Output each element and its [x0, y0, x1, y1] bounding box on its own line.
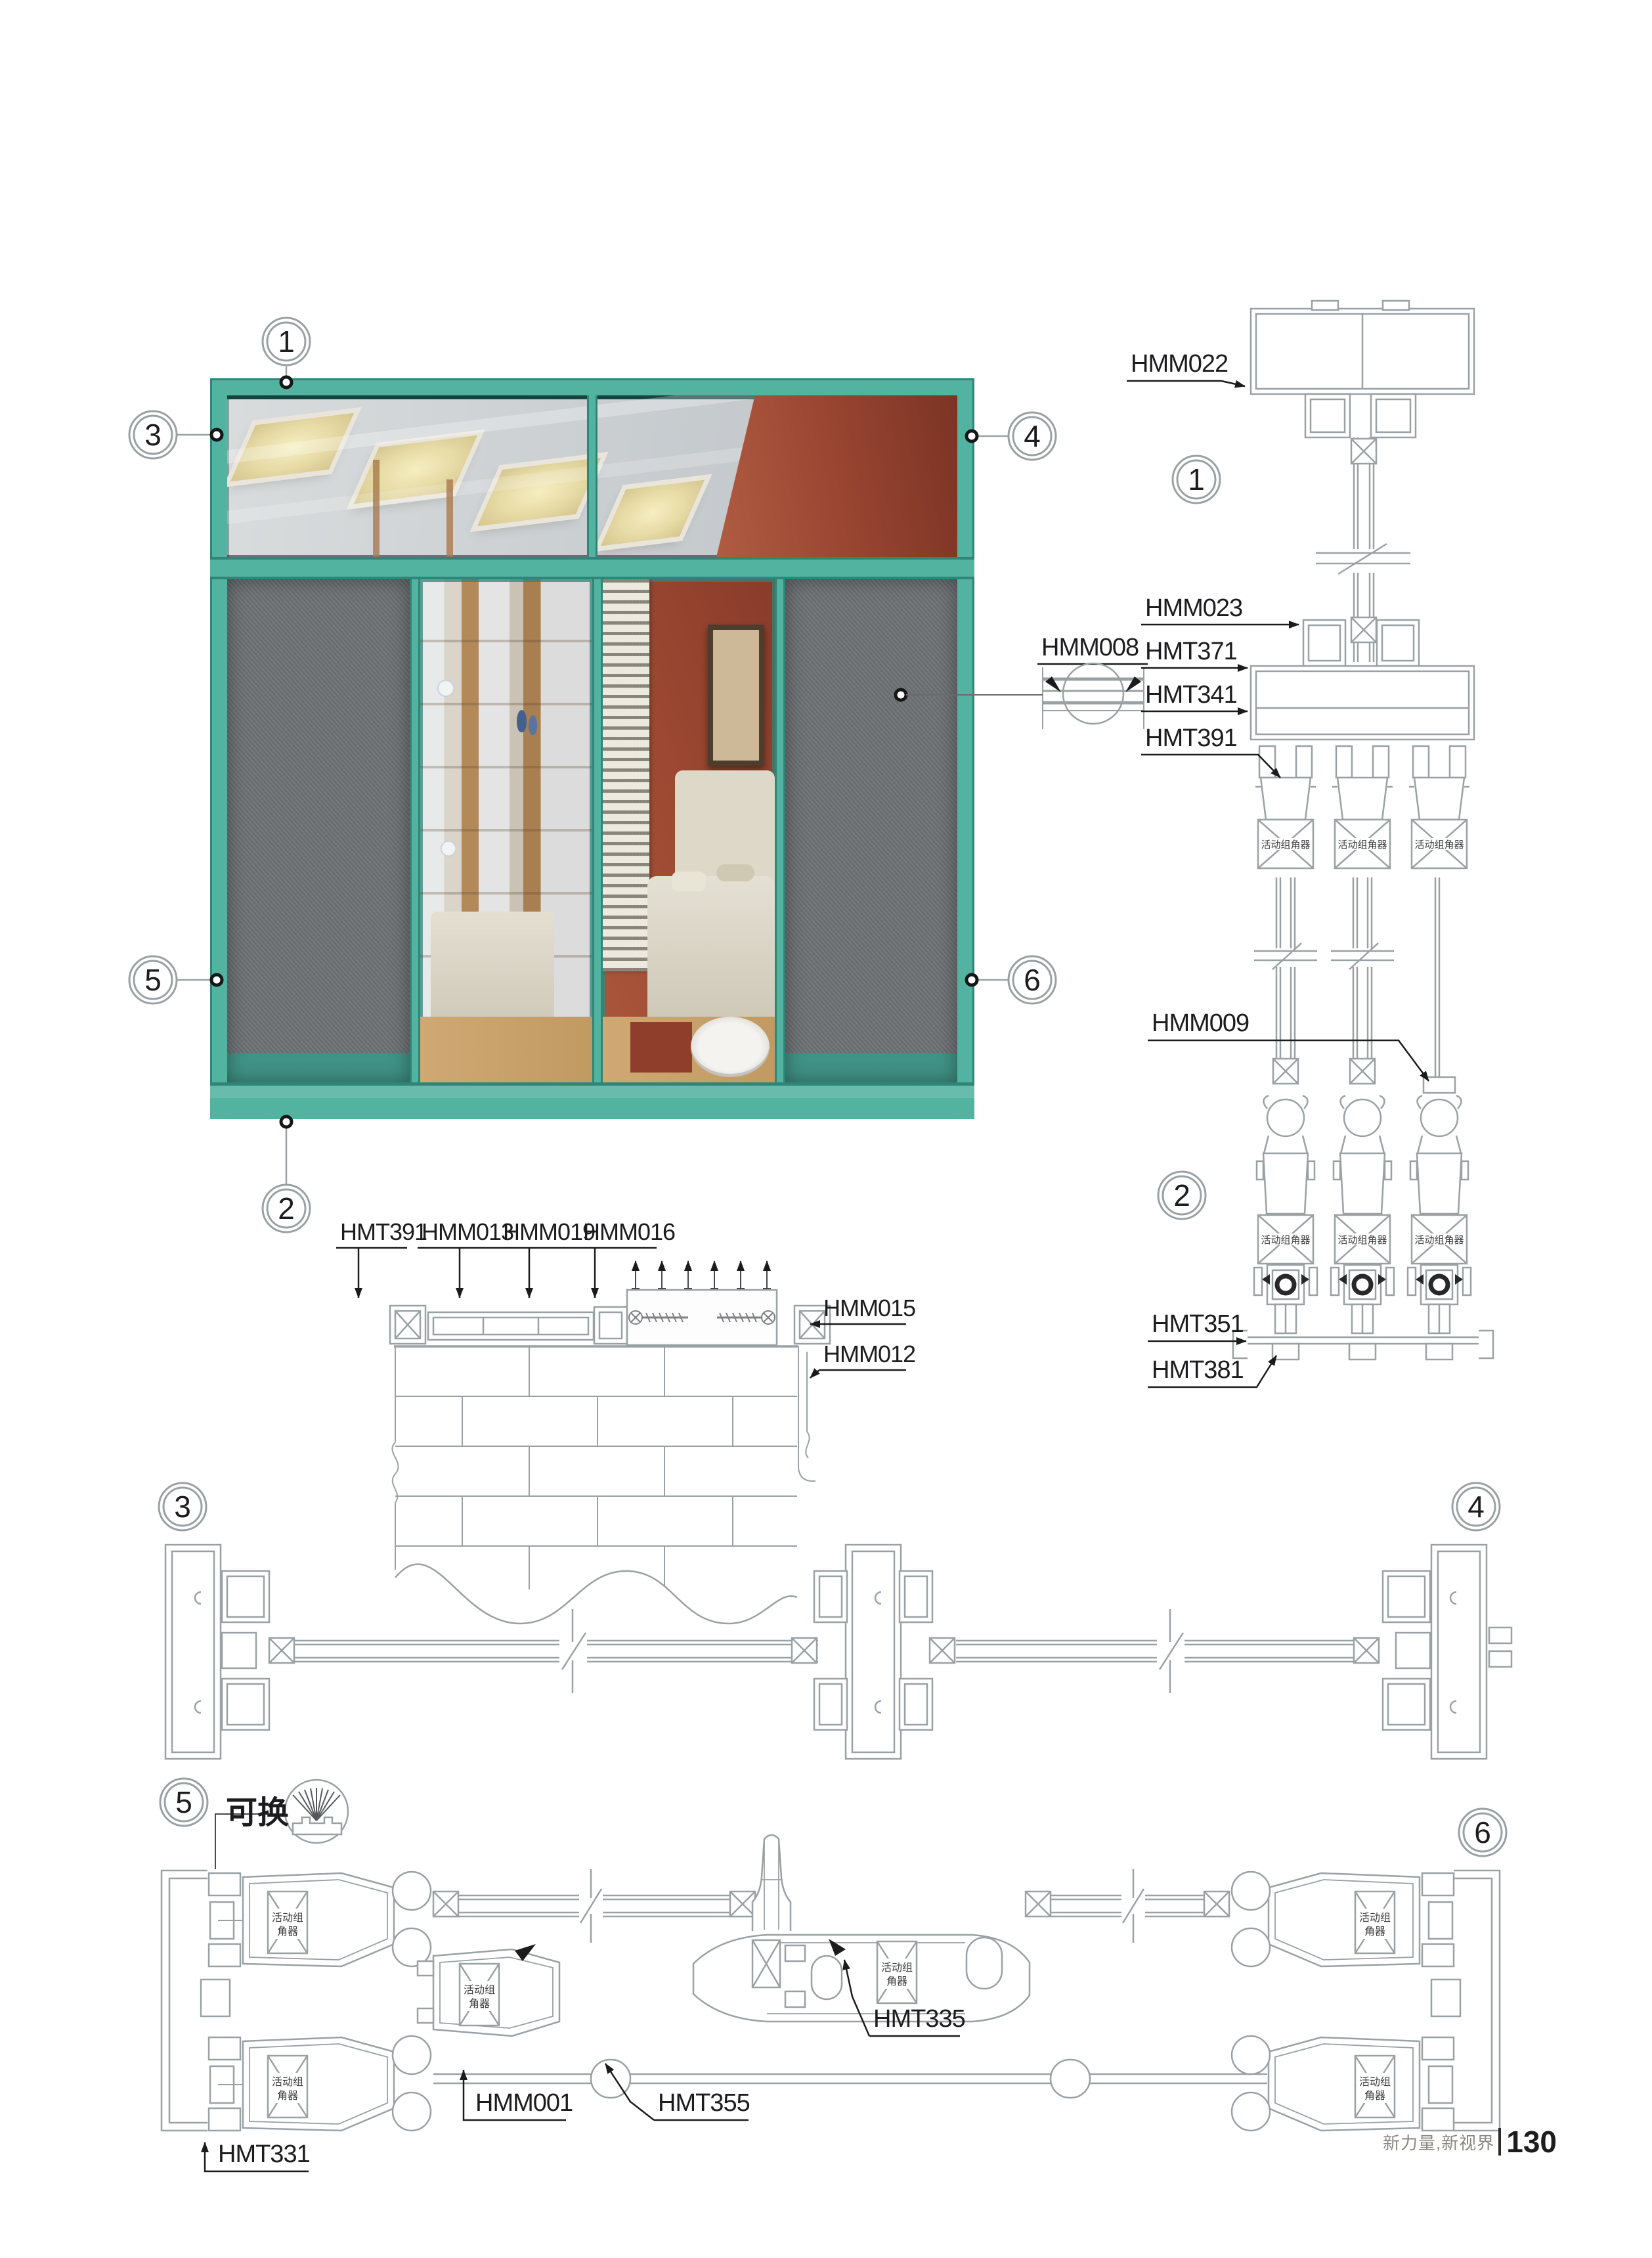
callout-4: 4: [1024, 419, 1041, 453]
sec56-callout-5: 5: [175, 1785, 192, 1819]
vsec-callout-1: 1: [1188, 462, 1205, 497]
callout-1: 1: [278, 324, 295, 359]
hmt381-label: HMT381: [1152, 1356, 1244, 1384]
hmm008-label: HMM008: [1041, 634, 1139, 661]
callout-2: 2: [278, 1191, 295, 1226]
section-3-4: [159, 1483, 1511, 1759]
callout-6: 6: [1024, 963, 1041, 997]
footer-brand: 新力量,新视界: [1383, 2130, 1494, 2154]
hmt331-label: HMT331: [218, 2140, 310, 2168]
brick-wall: [392, 1346, 815, 1671]
hmm023-label: HMM023: [1145, 594, 1242, 622]
hmm019-label: HMM019: [503, 1218, 595, 1245]
hmm001-label: HMM001: [475, 2089, 573, 2117]
hmm009-label: HMM009: [1152, 1009, 1249, 1037]
vertical-section: [1233, 301, 1493, 1360]
callout-3: 3: [144, 418, 162, 452]
hmm008-detail: HMM008: [896, 634, 1148, 729]
vent-arrows: [632, 1261, 771, 1289]
sec56-callout-6: 6: [1474, 1815, 1491, 1849]
hmt341-label: HMT341: [1145, 681, 1237, 709]
hmt355-label: HMT355: [658, 2089, 750, 2117]
callout-5: 5: [144, 963, 162, 997]
vsec-callout-2: 2: [1173, 1178, 1190, 1212]
elevation-callouts: [129, 318, 1056, 1232]
hmt351-label: HMT351: [1152, 1310, 1244, 1338]
hmm016-label: HMM016: [583, 1218, 675, 1245]
sec34-callout-4: 4: [1467, 1490, 1485, 1524]
hmm012-label: HMM012: [823, 1340, 915, 1367]
hmm013-label: HMM013: [422, 1218, 513, 1245]
hmm015-label: HMM015: [823, 1295, 915, 1321]
page-footer: 新力量,新视界 130: [1383, 2124, 1557, 2159]
section-5-6: [160, 1779, 1506, 2131]
hmt371-label: HMT371: [1145, 638, 1237, 665]
hmt335-label: HMT335: [873, 2005, 965, 2033]
hmm022-label: HMM022: [1131, 350, 1228, 378]
swap-label: 可换: [226, 1796, 289, 1830]
hmt391-label: HMT391: [340, 1218, 427, 1245]
sec34-callout-3: 3: [174, 1490, 191, 1524]
elevation-callout-numbers: 1 3 4 5 6 2: [144, 324, 1041, 1226]
catalog-page: 活动组角器 活动组 角器: [0, 0, 1652, 2258]
footer-page-number: 130: [1506, 2124, 1557, 2159]
brush-seal-icon: [293, 1788, 341, 1834]
hmt391-label-v: HMT391: [1145, 724, 1237, 752]
vertical-section-callouts: [1158, 456, 1220, 1219]
footer-divider: [1498, 2128, 1501, 2156]
technical-drawings: 活动组角器 活动组 角器: [0, 0, 1652, 2258]
